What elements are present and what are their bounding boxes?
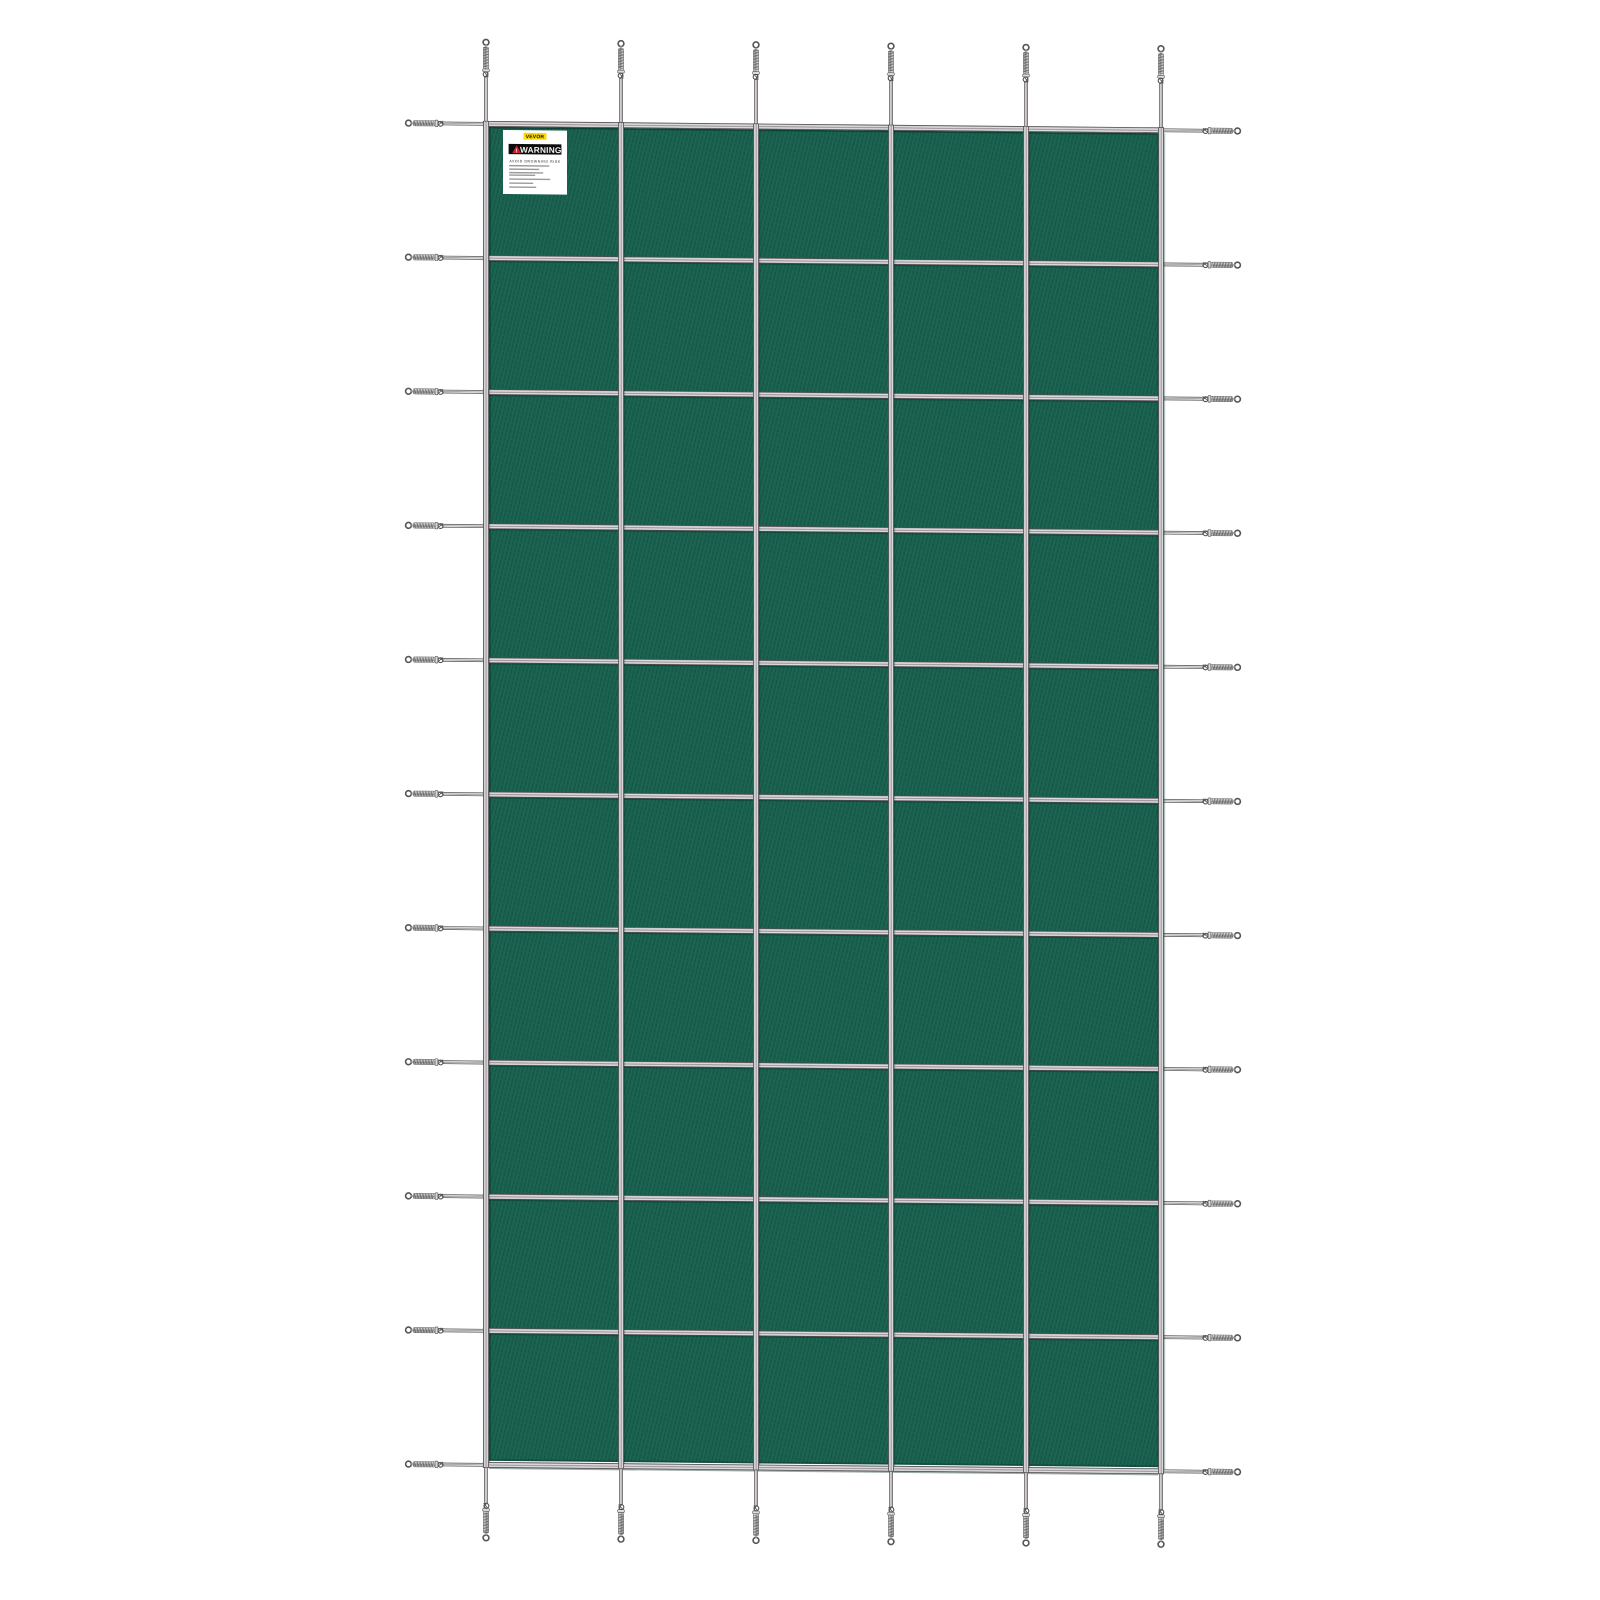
svg-text:WARNING: WARNING: [520, 145, 561, 155]
svg-text:VEVOR: VEVOR: [526, 134, 545, 140]
svg-text:!: !: [516, 148, 518, 154]
svg-text:AVOID DROWNING RISK: AVOID DROWNING RISK: [509, 159, 561, 163]
